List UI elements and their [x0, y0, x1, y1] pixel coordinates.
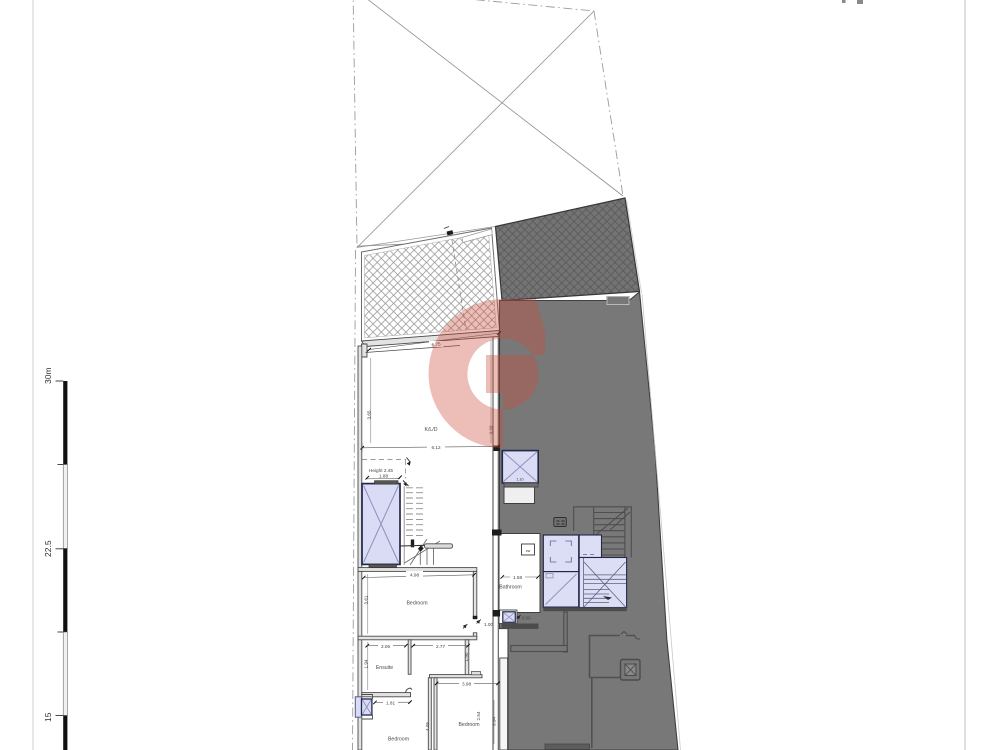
- svg-text:4.98: 4.98: [410, 572, 420, 577]
- svg-text:Height 2.45: Height 2.45: [369, 468, 393, 473]
- svg-text:2.54: 2.54: [476, 711, 481, 720]
- svg-text:Bedroom: Bedroom: [388, 737, 409, 743]
- svg-text:cw: cw: [526, 549, 531, 553]
- svg-text:K/L/D: K/L/D: [425, 427, 438, 433]
- svg-text:30m: 30m: [43, 367, 53, 384]
- svg-text:1.90: 1.90: [464, 652, 469, 661]
- svg-text:Bedroom: Bedroom: [458, 722, 479, 728]
- svg-text:1.00: 1.00: [484, 622, 494, 627]
- svg-text:4.05: 4.05: [425, 722, 430, 731]
- svg-text:1.58: 1.58: [513, 575, 523, 580]
- svg-text:1.81: 1.81: [386, 701, 396, 706]
- svg-text:Ensuite: Ensuite: [376, 665, 393, 671]
- svg-text:2.77: 2.77: [436, 644, 446, 649]
- svg-text:22.5: 22.5: [43, 540, 53, 557]
- svg-text:1.10: 1.10: [517, 478, 524, 482]
- svg-text:0.90: 0.90: [522, 616, 532, 621]
- svg-text:Bedroom: Bedroom: [406, 601, 427, 607]
- svg-text:15: 15: [43, 712, 53, 722]
- svg-text:6.12: 6.12: [431, 445, 441, 450]
- svg-text:3.65: 3.65: [367, 410, 372, 419]
- svg-text:3.98: 3.98: [462, 682, 472, 687]
- svg-text:Bathroom: Bathroom: [499, 585, 522, 591]
- svg-text:1.94: 1.94: [363, 659, 368, 668]
- svg-text:1.88: 1.88: [379, 474, 389, 479]
- svg-text:3.61: 3.61: [363, 595, 368, 604]
- svg-text:3.94: 3.94: [492, 717, 497, 726]
- svg-text:2.06: 2.06: [381, 644, 391, 649]
